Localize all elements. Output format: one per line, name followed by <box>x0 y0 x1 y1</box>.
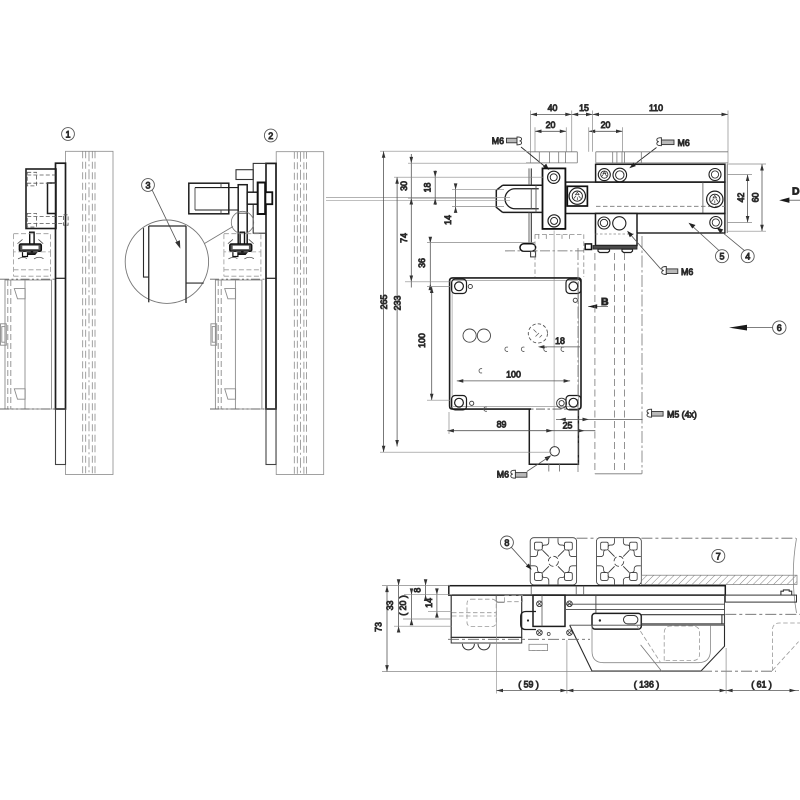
svg-text:20: 20 <box>601 120 611 130</box>
svg-text:42: 42 <box>736 193 746 203</box>
svg-text:30: 30 <box>399 181 409 191</box>
svg-text:1: 1 <box>65 129 70 139</box>
svg-text:14: 14 <box>424 598 434 608</box>
svg-text:D: D <box>792 186 800 198</box>
svg-text:60: 60 <box>750 193 760 203</box>
svg-text:18: 18 <box>423 183 433 193</box>
svg-text:15: 15 <box>579 103 589 113</box>
svg-text:8: 8 <box>504 538 509 548</box>
svg-text:3: 3 <box>145 180 150 190</box>
svg-text:40: 40 <box>548 103 558 113</box>
svg-text:18: 18 <box>555 336 565 346</box>
svg-text:73: 73 <box>373 622 383 632</box>
svg-text:M6: M6 <box>492 136 504 146</box>
svg-text:M5 (4x): M5 (4x) <box>667 409 697 419</box>
svg-text:25: 25 <box>563 421 573 431</box>
svg-text:74: 74 <box>399 233 409 243</box>
svg-text:2: 2 <box>268 131 273 141</box>
svg-text:233: 233 <box>393 296 403 311</box>
svg-text:8: 8 <box>413 588 423 593</box>
svg-text:20: 20 <box>546 120 556 130</box>
svg-text:( 61 ): ( 61 ) <box>751 680 772 690</box>
svg-text:110: 110 <box>649 103 663 113</box>
svg-text:( 59 ): ( 59 ) <box>518 680 539 690</box>
svg-text:4: 4 <box>745 252 750 262</box>
svg-text:33: 33 <box>385 601 395 611</box>
svg-text:89: 89 <box>497 419 507 429</box>
svg-text:7: 7 <box>716 551 721 561</box>
svg-text:100: 100 <box>506 370 521 380</box>
svg-text:6: 6 <box>777 323 782 333</box>
svg-text:265: 265 <box>379 295 389 310</box>
svg-text:M6: M6 <box>681 267 693 277</box>
svg-text:M6: M6 <box>497 470 509 480</box>
svg-text:M6: M6 <box>678 138 690 148</box>
svg-text:36: 36 <box>417 258 427 268</box>
svg-text:5: 5 <box>719 252 724 262</box>
svg-text:14: 14 <box>443 215 453 225</box>
svg-text:( 20 ): ( 20 ) <box>398 595 408 616</box>
svg-text:( 136 ): ( 136 ) <box>634 680 659 690</box>
svg-text:100: 100 <box>417 333 427 348</box>
